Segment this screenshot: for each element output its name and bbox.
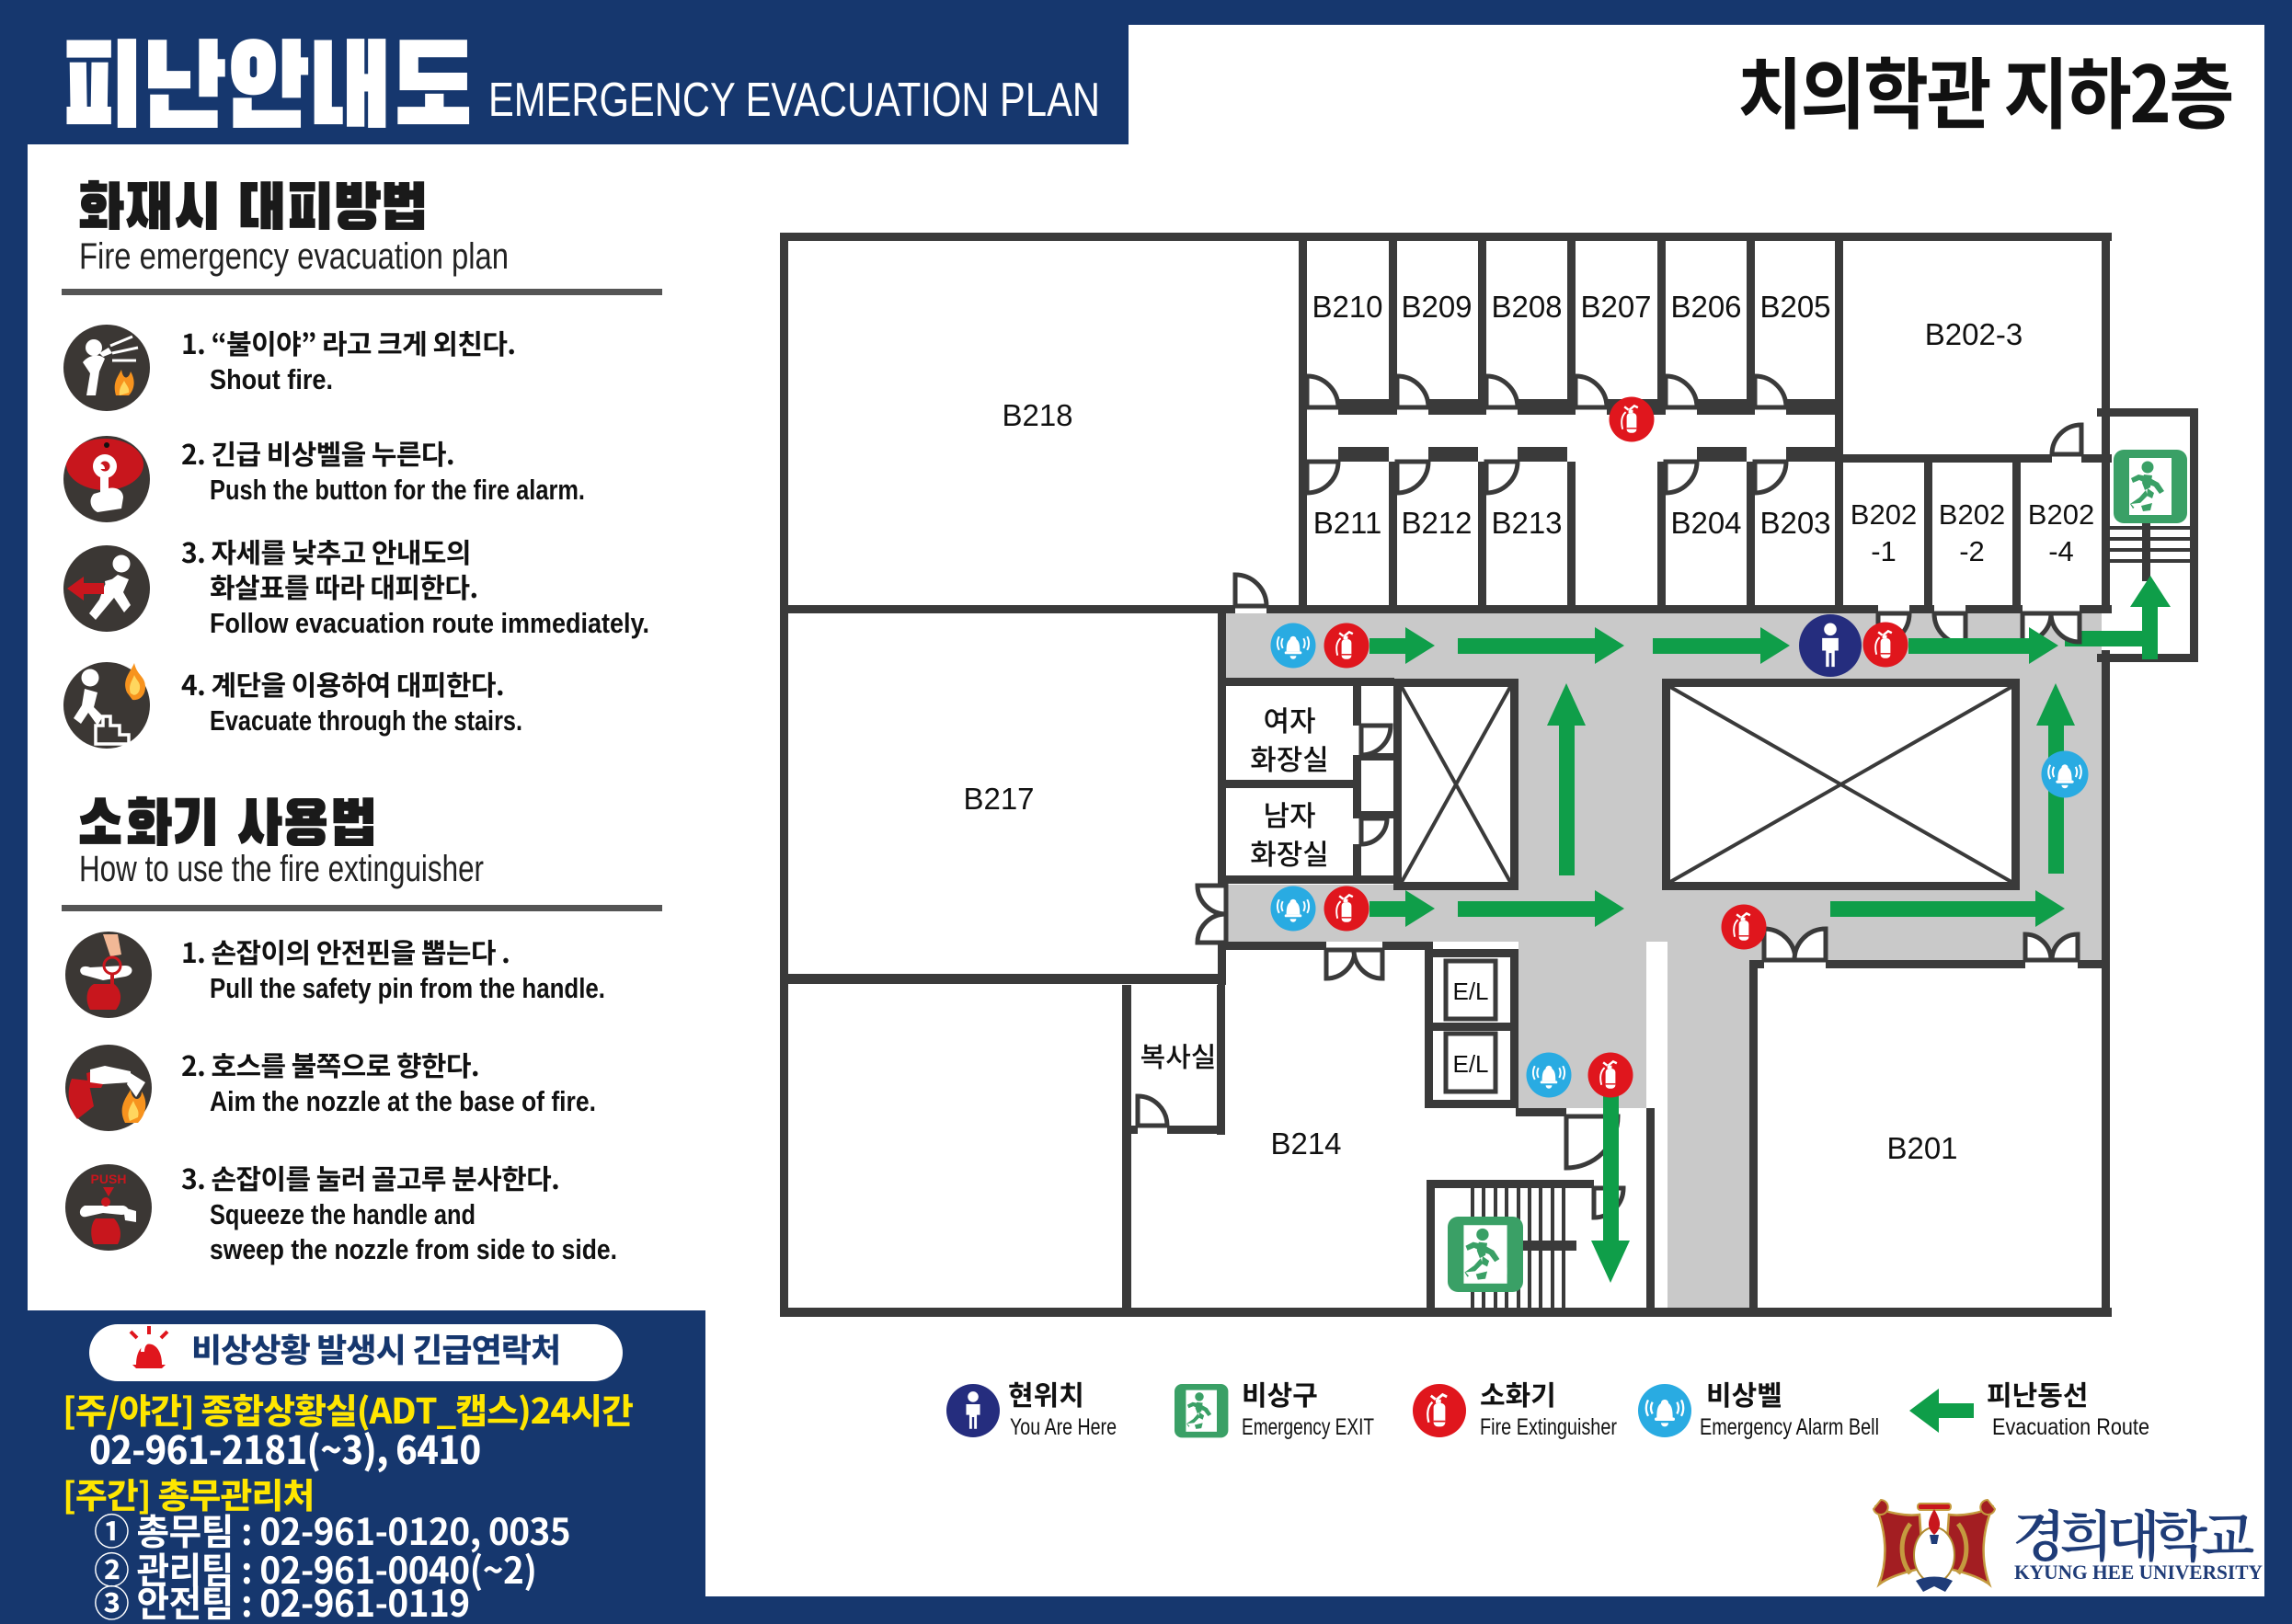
svg-text:-4: -4 (2048, 535, 2074, 567)
svg-text:B209: B209 (1401, 290, 1472, 324)
svg-text:B210: B210 (1312, 290, 1382, 324)
svg-text:B202: B202 (1851, 498, 1917, 531)
svg-text:Evacuate through the stairs.: Evacuate through the stairs. (210, 704, 522, 737)
svg-text:B207: B207 (1580, 290, 1651, 324)
svg-text:Pull the safety pin from the h: Pull the safety pin from the handle. (210, 972, 605, 1004)
svg-text:B212: B212 (1401, 506, 1472, 540)
svg-text:B202-3: B202-3 (1925, 317, 2023, 351)
svg-text:sweep the nozzle from side to: sweep the nozzle from side to side. (210, 1233, 617, 1265)
svg-text:B218: B218 (1002, 398, 1072, 432)
svg-text:KYUNG HEE UNIVERSITY: KYUNG HEE UNIVERSITY (2014, 1561, 2263, 1584)
svg-text:You Are Here: You Are Here (1010, 1414, 1117, 1440)
svg-text:Emergency EXIT: Emergency EXIT (1242, 1414, 1374, 1440)
svg-text:B213: B213 (1491, 506, 1562, 540)
svg-text:B206: B206 (1670, 290, 1741, 324)
svg-text:B205: B205 (1759, 290, 1830, 324)
svg-text:E/L: E/L (1452, 978, 1488, 1005)
svg-text:Follow evacuation route immedi: Follow evacuation route immediately. (210, 607, 649, 639)
svg-text:How to use the fire extinguish: How to use the fire extinguisher (79, 849, 484, 889)
svg-text:B202: B202 (2028, 498, 2094, 531)
svg-text:Evacuation Route: Evacuation Route (1992, 1414, 2149, 1440)
svg-text:B208: B208 (1491, 290, 1562, 324)
svg-text:Fire Extinguisher: Fire Extinguisher (1480, 1414, 1617, 1440)
svg-text:EMERGENCY EVACUATION PLAN: EMERGENCY EVACUATION PLAN (488, 74, 1100, 127)
svg-text:-1: -1 (1871, 535, 1897, 567)
svg-text:B214: B214 (1270, 1127, 1341, 1161)
svg-text:E/L: E/L (1452, 1050, 1488, 1078)
svg-text:Squeeze the handle and: Squeeze the handle and (210, 1198, 476, 1230)
svg-text:Fire emergency evacuation plan: Fire emergency evacuation plan (79, 236, 509, 277)
svg-text:-2: -2 (1959, 535, 1985, 567)
svg-text:Aim the nozzle at the base of: Aim the nozzle at the base of fire. (210, 1085, 596, 1117)
svg-text:Emergency Alarm Bell: Emergency Alarm Bell (1700, 1414, 1879, 1440)
svg-text:Shout fire.: Shout fire. (210, 363, 333, 395)
svg-text:B204: B204 (1670, 506, 1741, 540)
svg-text:Push the button for the fire a: Push the button for the fire alarm. (210, 474, 585, 506)
svg-text:B217: B217 (963, 782, 1034, 816)
svg-text:B211: B211 (1313, 506, 1382, 540)
svg-text:B202: B202 (1939, 498, 2005, 531)
svg-text:B201: B201 (1886, 1131, 1957, 1165)
svg-text:B203: B203 (1759, 506, 1830, 540)
